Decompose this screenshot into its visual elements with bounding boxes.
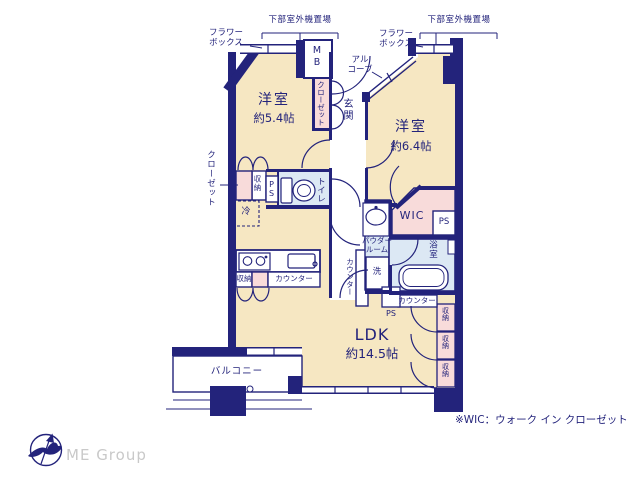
- washbasin-icon: [363, 203, 389, 236]
- kitchen-sink-icon: [288, 254, 317, 268]
- corridor-counter-label: カウンター: [346, 258, 354, 296]
- east-storage-label-3: 収納: [442, 363, 449, 377]
- floor-plan-drawing: [0, 0, 640, 480]
- ldk-window: [302, 386, 434, 394]
- toilet-icon: [281, 178, 315, 203]
- bedroom2-size: 約6.4帖: [390, 140, 431, 153]
- bedroom1-name: 洋室: [258, 92, 290, 108]
- ps-label-1: PS: [267, 180, 275, 198]
- powder-room-label: パウダー ルーム: [362, 237, 392, 254]
- meter-box-label: MB: [312, 45, 322, 69]
- flower-box-window-left: [240, 44, 296, 54]
- flower-box-label-right: フラワー ボックス: [379, 30, 413, 50]
- outdoor-unit-label-right: 下部室外機置場: [427, 16, 490, 26]
- bedroom2-name: 洋室: [395, 119, 427, 135]
- balcony-window: [247, 347, 302, 356]
- ps-label-2: PS: [439, 218, 450, 228]
- outdoor-unit-label-left: 下部室外機置場: [268, 16, 331, 26]
- flower-box-window-right: [416, 44, 453, 54]
- east-storage-label-2: 収納: [442, 335, 449, 349]
- wic-footnote: ※WIC：ウォーク イン クローゼット: [455, 414, 628, 426]
- alcove-label: アル コーブ: [348, 56, 373, 76]
- compass-bird-logo-icon: [28, 434, 62, 466]
- wic-label: WIC: [400, 210, 425, 223]
- entrance-closet-label: クローゼット: [317, 81, 325, 126]
- refrigerator-label: 冷: [241, 207, 250, 217]
- closet-label-outside: クローゼット: [206, 150, 215, 207]
- toilet-label: トイレ: [316, 177, 325, 203]
- east-storage-label-1: 収納: [442, 307, 449, 321]
- balcony-label: バルコニー: [211, 367, 263, 378]
- ldk-size: 約14.5帖: [346, 347, 399, 361]
- ps-label-3: PS: [386, 309, 396, 318]
- floor-plan-page: 下部室外機置場 下部室外機置場 フラワー ボックス フラワー ボックス アル コ…: [0, 0, 640, 480]
- entrance-label: 玄関: [341, 98, 351, 122]
- brand-name: ME Group: [66, 447, 147, 464]
- ldk-name: LDK: [355, 326, 390, 344]
- flower-box-label-left: フラワー ボックス: [209, 29, 243, 49]
- bath-counter-label: カウンター: [398, 297, 436, 306]
- balcony-drain-icon: [247, 386, 253, 392]
- closet-box: [236, 171, 252, 200]
- kitchen-counter-label: カウンター: [275, 275, 313, 284]
- storage-label-1: 収納: [254, 175, 262, 192]
- bedroom1-size: 約5.4帖: [253, 112, 294, 125]
- kitchen-storage-label: 収納: [237, 275, 252, 284]
- bath-label: 浴室: [428, 240, 437, 259]
- stove-icon: [239, 253, 270, 270]
- washer-label: 洗: [373, 268, 382, 278]
